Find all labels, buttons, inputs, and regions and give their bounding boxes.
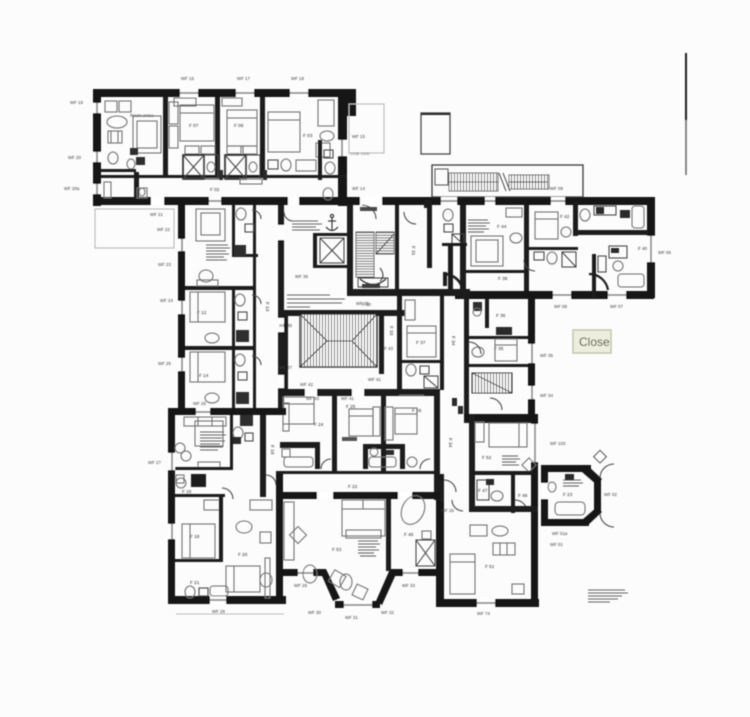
svg-text:F 23: F 23 <box>563 492 573 497</box>
svg-text:WF 30: WF 30 <box>308 610 321 615</box>
svg-text:WF 20a: WF 20a <box>64 186 80 191</box>
svg-text:F 02: F 02 <box>210 187 220 192</box>
svg-text:F 49: F 49 <box>518 493 528 498</box>
svg-text:F 34: F 34 <box>451 336 456 346</box>
svg-text:F 20: F 20 <box>238 552 248 557</box>
svg-text:WF 32: WF 32 <box>381 610 394 615</box>
svg-text:F 24: F 24 <box>314 422 324 427</box>
svg-text:WF 28: WF 28 <box>212 609 225 614</box>
svg-text:F 42: F 42 <box>560 214 570 219</box>
svg-text:WF 02: WF 02 <box>604 492 617 497</box>
svg-text:WF 23: WF 23 <box>158 262 171 267</box>
svg-text:WF 1b: WF 1b <box>441 508 454 513</box>
svg-text:F 07: F 07 <box>189 123 199 128</box>
svg-text:F 47: F 47 <box>478 488 488 493</box>
svg-text:F 31: F 31 <box>411 246 416 256</box>
svg-text:F 13: F 13 <box>265 302 270 312</box>
svg-text:WF 14: WF 14 <box>352 186 365 191</box>
svg-text:WF 06: WF 06 <box>658 250 671 255</box>
svg-text:WF 39: WF 39 <box>295 274 308 279</box>
svg-text:F 22: F 22 <box>348 484 358 489</box>
svg-text:WF 103: WF 103 <box>550 441 566 446</box>
svg-text:F 52: F 52 <box>482 455 492 460</box>
svg-text:F 14: F 14 <box>199 373 209 378</box>
svg-text:WF 74: WF 74 <box>477 611 490 616</box>
svg-text:WF 26: WF 26 <box>193 401 206 406</box>
svg-text:WF 17: WF 17 <box>237 76 250 81</box>
svg-text:F 39: F 39 <box>498 276 508 281</box>
svg-text:WF 01a: WF 01a <box>552 531 568 536</box>
svg-text:F 44: F 44 <box>497 224 507 229</box>
svg-text:F 21: F 21 <box>190 580 200 585</box>
svg-text:WF 16: WF 16 <box>181 76 194 81</box>
svg-text:WF 25: WF 25 <box>158 361 171 366</box>
svg-text:WF 09: WF 09 <box>550 186 563 191</box>
svg-text:F 08: F 08 <box>234 123 244 128</box>
svg-text:F 25: F 25 <box>346 404 356 409</box>
svg-text:WF 25: WF 25 <box>356 301 369 306</box>
svg-text:WF 41: WF 41 <box>341 396 354 401</box>
svg-text:WF 18: WF 18 <box>291 76 304 81</box>
svg-text:WF 27: WF 27 <box>148 460 161 465</box>
svg-text:WF 20: WF 20 <box>68 155 81 160</box>
svg-text:223B 130b: 223B 130b <box>350 151 370 156</box>
svg-text:WF 08: WF 08 <box>554 304 567 309</box>
svg-text:F 40: F 40 <box>638 246 648 251</box>
svg-text:F 34: F 34 <box>448 438 453 448</box>
svg-text:F 16: F 16 <box>182 489 192 494</box>
svg-text:WF 07: WF 07 <box>610 304 623 309</box>
svg-text:F 33: F 33 <box>389 326 394 336</box>
svg-text:WF 01: WF 01 <box>550 542 563 547</box>
svg-text:WF 31: WF 31 <box>345 615 358 620</box>
svg-text:F 03: F 03 <box>303 133 313 138</box>
svg-text:F 51: F 51 <box>485 564 495 569</box>
svg-text:WF 22: WF 22 <box>157 227 170 232</box>
svg-text:WF 21: WF 21 <box>150 212 163 217</box>
svg-text:WF 15: WF 15 <box>352 134 365 139</box>
svg-text:F 19: F 19 <box>270 445 275 455</box>
svg-text:WF 41: WF 41 <box>368 377 381 382</box>
svg-text:WF 24: WF 24 <box>160 298 173 303</box>
svg-text:WF 29: WF 29 <box>294 583 307 588</box>
svg-text:WF 42: WF 42 <box>300 382 313 387</box>
svg-text:F 53: F 53 <box>332 547 342 552</box>
svg-text:F 18: F 18 <box>190 534 200 539</box>
svg-text:Close: Close <box>579 335 610 349</box>
svg-text:F 36: F 36 <box>496 313 506 318</box>
svg-text:F 46: F 46 <box>404 532 414 537</box>
svg-text:WF 19: WF 19 <box>70 100 83 105</box>
svg-text:F 37: F 37 <box>416 340 426 345</box>
svg-text:WF 35: WF 35 <box>540 353 553 358</box>
svg-text:WF 33: WF 33 <box>402 583 415 588</box>
svg-text:WF 34: WF 34 <box>540 393 553 398</box>
